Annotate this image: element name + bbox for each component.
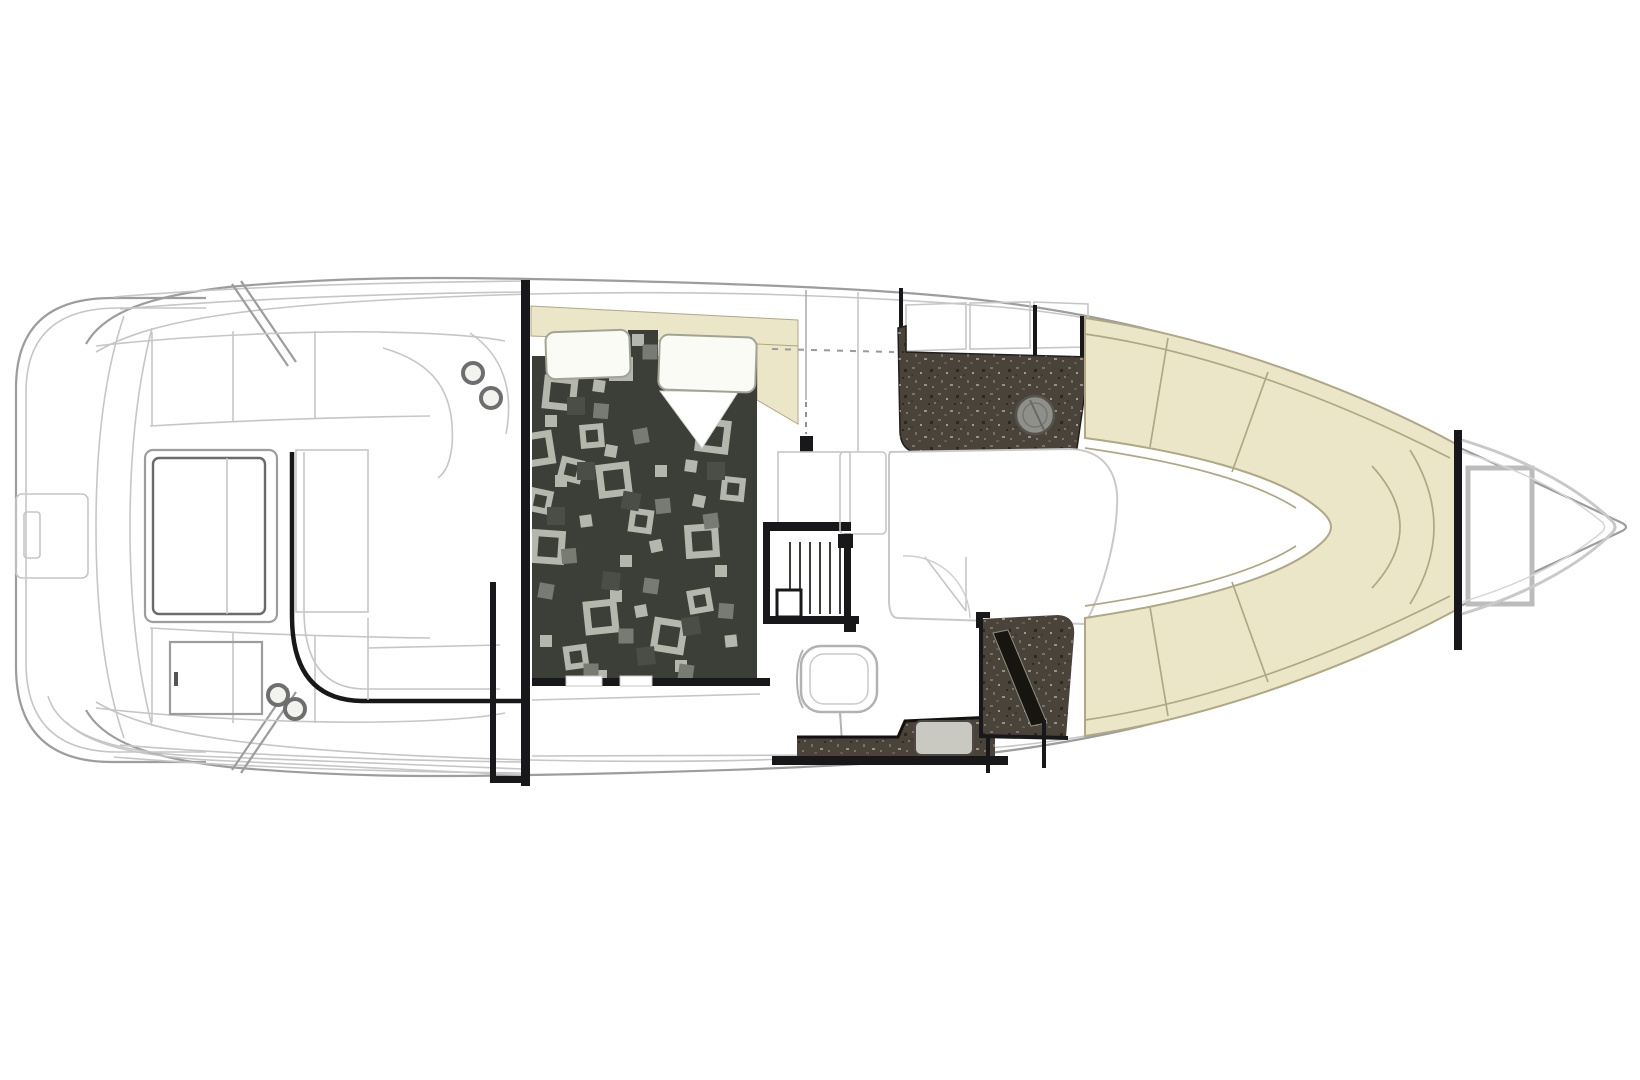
- forward-bulkhead-wall: [1454, 430, 1462, 650]
- bedspread-square: [703, 513, 720, 530]
- companion-seat: [296, 450, 368, 612]
- bedspread-square: [620, 555, 632, 567]
- berth-foot-step-b: [620, 676, 652, 686]
- bedspread-square: [537, 536, 558, 557]
- bedspread-square: [634, 604, 648, 618]
- bedspread-square: [718, 603, 734, 619]
- head-door: [777, 590, 801, 617]
- mid-lounge-fitting-a: [838, 534, 853, 548]
- bedspread-square: [636, 646, 656, 666]
- cupholders-helm: [463, 363, 501, 408]
- mid-lounge-fitting-b: [844, 616, 856, 632]
- galley-counter-texture: [898, 326, 1090, 453]
- cupholder-icon: [268, 685, 288, 705]
- head-partition-leg-a: [986, 735, 990, 773]
- toilet-icon: [797, 646, 877, 742]
- cupholder-icon: [463, 363, 483, 383]
- anchor-locker: [1468, 468, 1532, 604]
- cockpit-step-wall: [490, 582, 496, 782]
- walkway-side-line-2: [368, 645, 500, 648]
- bedspread-square: [632, 334, 644, 346]
- bedspread-square: [643, 578, 660, 595]
- berth-side-wedge: [757, 344, 798, 424]
- bedspread-square: [533, 494, 547, 508]
- mid-lounge-seat: [889, 449, 1117, 624]
- mid-lounge-cabinet: [840, 452, 886, 534]
- galley: [898, 288, 1090, 453]
- cupholder-icon: [481, 388, 501, 408]
- centerline-marker: [800, 436, 813, 452]
- bedspread-square: [681, 616, 701, 636]
- bedspread-square: [726, 482, 739, 495]
- galley-sink-icon: [1016, 396, 1054, 434]
- bedspread-square: [561, 548, 577, 564]
- bedspread-square: [655, 465, 667, 477]
- bedspread-square: [693, 594, 707, 608]
- bedspread-square: [569, 650, 583, 664]
- bedspread-square: [592, 379, 606, 393]
- shower-frame-corner-b: [976, 612, 982, 628]
- cockpit-step-wall-foot: [490, 776, 530, 783]
- bedspread-square: [593, 403, 609, 419]
- bench-back-top: [96, 332, 505, 346]
- cabin-sole-line-a: [532, 694, 760, 700]
- bedspread-square: [547, 507, 565, 525]
- bedspread-square: [577, 462, 595, 480]
- bedspread-square: [621, 491, 642, 512]
- stairs-top-wall: [763, 522, 851, 531]
- pillow-right: [658, 334, 757, 392]
- bedspread-square: [567, 397, 585, 415]
- arch-leg-top-a: [232, 284, 288, 366]
- window-mullion-2: [1033, 305, 1037, 355]
- bench-front-bottom: [150, 628, 430, 638]
- bedspread-square: [707, 462, 725, 480]
- cockpit: [96, 281, 521, 773]
- transom-curve-inner: [130, 328, 152, 726]
- bedspread-square: [684, 459, 698, 473]
- stairs-left-wall: [763, 524, 770, 624]
- swim-platform-inner-line: [26, 308, 206, 752]
- bow-lounge: [1085, 318, 1456, 736]
- head-partition-leg-b: [1042, 720, 1046, 768]
- bow-section: [1454, 430, 1615, 650]
- bedspread-square: [540, 635, 552, 647]
- cockpit-table-outer: [145, 450, 277, 622]
- bedspread-square: [634, 514, 648, 528]
- mid-lounge: [838, 449, 1117, 632]
- helm-seat-curve-a: [383, 348, 452, 478]
- cupholder-icon: [285, 699, 305, 719]
- floorplan-canvas: [0, 0, 1640, 1080]
- bedspread-square: [555, 475, 567, 487]
- arch-leg-top-b: [241, 281, 296, 362]
- bedspread-square: [724, 634, 737, 647]
- bedspread-square: [604, 444, 618, 458]
- bedspread-square: [649, 539, 663, 553]
- bedspread-square: [537, 582, 554, 599]
- walkway-curve: [304, 452, 500, 689]
- berth-foot-step-a: [566, 676, 602, 686]
- main-bulkhead-wall: [521, 280, 530, 786]
- bedspread-square: [715, 565, 727, 577]
- bench-front-top: [150, 416, 430, 426]
- bedspread-square: [691, 530, 712, 551]
- bedspread-square: [658, 625, 681, 648]
- galley-window-1: [906, 303, 966, 351]
- aft-bench-seat: [170, 642, 262, 714]
- bedspread-square: [619, 629, 634, 644]
- pillow-left: [545, 330, 631, 380]
- bedspread-square: [632, 427, 649, 444]
- cockpit-table: [153, 458, 265, 614]
- boat-floorplan: [0, 0, 1640, 1080]
- bedspread-square: [692, 494, 706, 508]
- bedspread-square: [590, 606, 612, 628]
- aft-bench-latch: [174, 672, 178, 686]
- bedspread-square: [545, 415, 557, 427]
- bedspread-square: [603, 469, 625, 491]
- bedspread-square: [601, 571, 621, 591]
- head-sink-icon: [915, 721, 973, 755]
- head-bottom-wall: [772, 756, 1008, 765]
- transom-curve-outer: [96, 316, 124, 738]
- bedspread-square: [643, 345, 658, 360]
- bedspread-square: [585, 429, 598, 442]
- cockpit-module-edge: [292, 452, 521, 701]
- bedspread-square: [579, 514, 593, 528]
- cupholders-port: [268, 685, 305, 719]
- bedspread-square: [610, 590, 622, 602]
- bedspread-square: [678, 664, 695, 681]
- bedspread-square: [655, 498, 671, 514]
